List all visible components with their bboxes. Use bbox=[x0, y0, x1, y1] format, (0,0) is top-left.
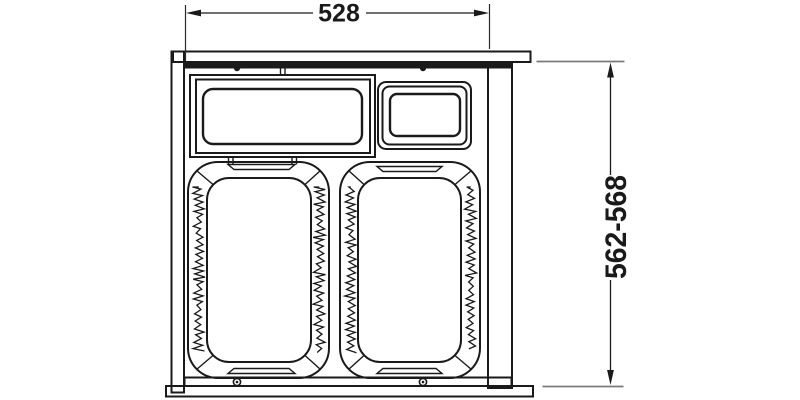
storage-compartment-large bbox=[190, 75, 375, 165]
technical-drawing: 528 562-568 bbox=[0, 0, 800, 400]
right-side-panel bbox=[488, 62, 512, 388]
bin-lip-top bbox=[377, 167, 442, 172]
arrow-down-icon bbox=[607, 370, 614, 385]
width-dimension-label: 528 bbox=[318, 0, 360, 28]
bin-lip-top bbox=[228, 165, 295, 170]
hatch-scribble bbox=[313, 187, 325, 353]
depth-dimension-label: 562-568 bbox=[600, 175, 633, 279]
top-plate bbox=[173, 52, 531, 63]
bin-lip-bottom bbox=[377, 369, 442, 374]
bin-outer-rim bbox=[188, 162, 329, 378]
dimension-depth: 562-568 bbox=[537, 62, 634, 387]
front-rail-bar bbox=[185, 62, 512, 69]
compartment-mid bbox=[196, 80, 370, 154]
rim-corner-lines bbox=[197, 171, 321, 370]
rim-corner-lines bbox=[349, 171, 472, 370]
left-side-panel bbox=[172, 52, 185, 393]
storage-compartment-small bbox=[378, 82, 471, 149]
bin-opening bbox=[358, 178, 461, 362]
bottom-plate bbox=[166, 386, 533, 397]
compartment-inner bbox=[203, 89, 362, 144]
bin-outer-rim bbox=[340, 162, 480, 378]
bin-lip-bottom bbox=[228, 369, 295, 374]
hatch-scribble bbox=[465, 187, 477, 349]
compartment-outer bbox=[378, 82, 471, 149]
waste-bin-right bbox=[340, 162, 480, 378]
arrow-right-icon bbox=[474, 10, 489, 17]
screw-center bbox=[236, 381, 239, 384]
compartment-inner bbox=[390, 94, 460, 136]
screw-center bbox=[422, 381, 425, 384]
rail-screw-icon bbox=[234, 65, 240, 71]
arrow-up-icon bbox=[607, 63, 614, 78]
waste-bin-left bbox=[188, 162, 329, 378]
drawer-frame bbox=[166, 52, 533, 397]
rail-screw-icon bbox=[420, 65, 426, 71]
bin-opening bbox=[207, 178, 311, 362]
arrow-left-icon bbox=[186, 10, 201, 17]
drawer-top-view-diagram: 528 562-568 bbox=[0, 0, 800, 400]
rim-hatching bbox=[193, 187, 477, 353]
connector-tab bbox=[229, 157, 297, 165]
hatch-scribble bbox=[193, 187, 206, 351]
hatch-scribble bbox=[345, 187, 357, 353]
